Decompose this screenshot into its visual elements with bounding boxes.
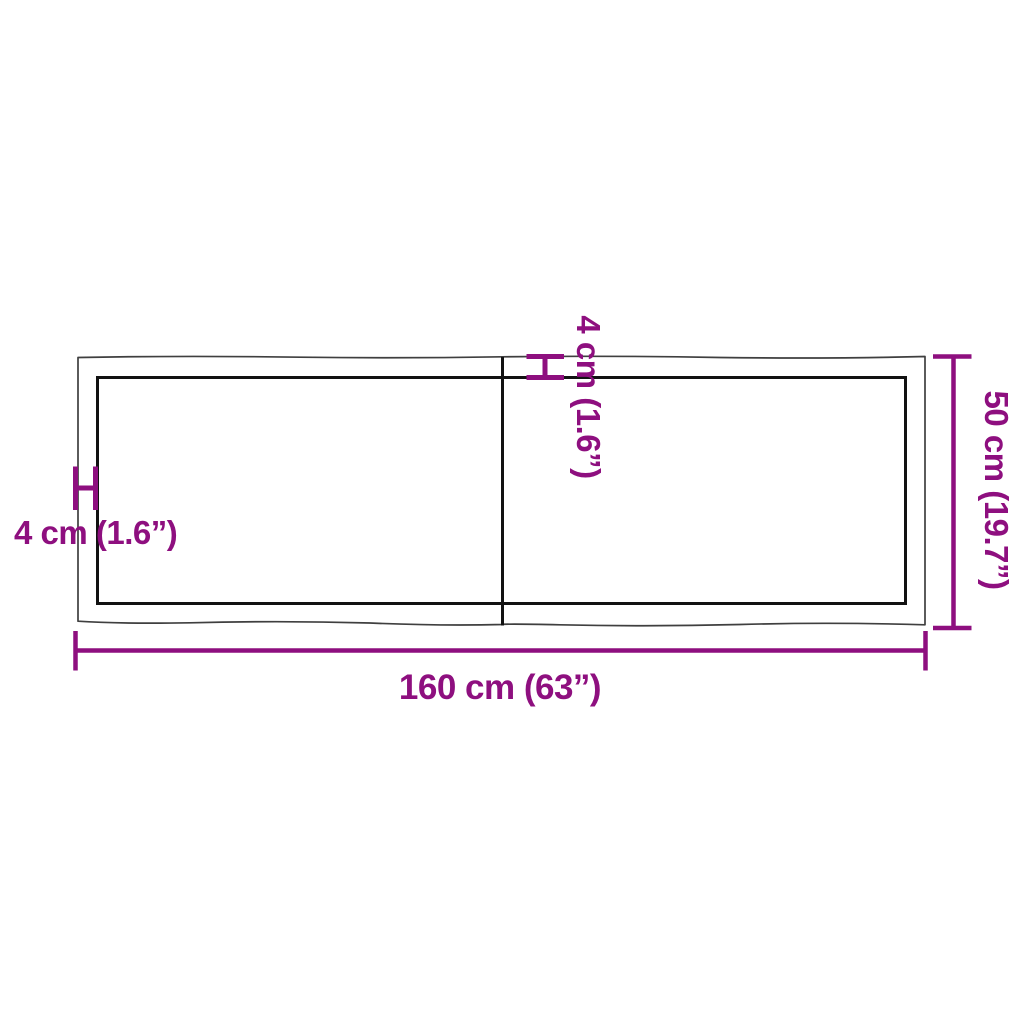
width-dimension-label: 160 cm (63”) xyxy=(399,669,601,707)
diagram-drawing xyxy=(0,0,1024,1024)
height-dimension-label: 50 cm (19.7”) xyxy=(977,391,1015,590)
dimension-diagram: 160 cm (63”) 50 cm (19.7”) 4 cm (1.6”) 4… xyxy=(0,0,1024,1024)
thickness-left-dimension-label: 4 cm (1.6”) xyxy=(14,514,177,552)
thickness-top-dimension-label: 4 cm (1.6”) xyxy=(569,315,607,478)
